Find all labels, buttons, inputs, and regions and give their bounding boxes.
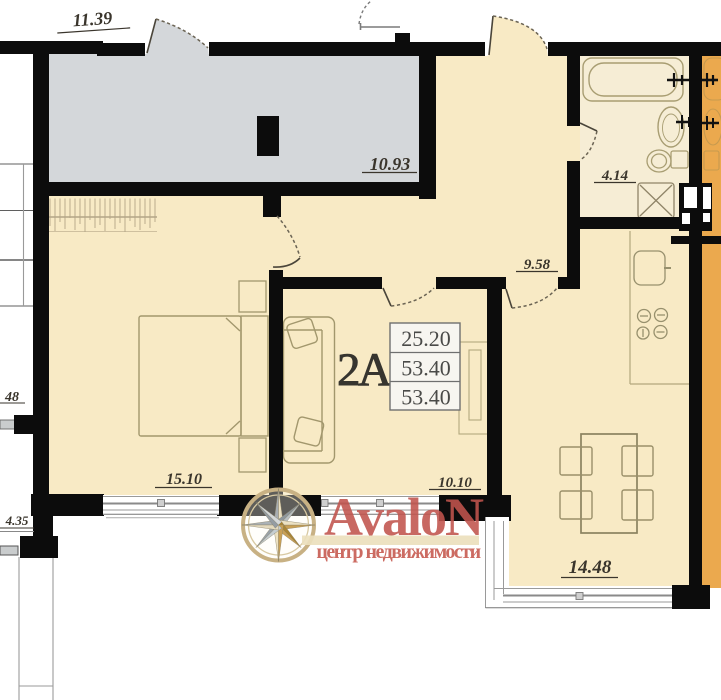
svg-text:4.14: 4.14 bbox=[601, 168, 629, 184]
svg-text:53.40: 53.40 bbox=[401, 385, 451, 410]
svg-text:2А: 2А bbox=[337, 344, 392, 396]
svg-text:центр недвижимости: центр недвижимости bbox=[316, 541, 480, 563]
svg-text:9.58: 9.58 bbox=[524, 257, 551, 273]
svg-text:53.40: 53.40 bbox=[401, 356, 451, 381]
svg-text:15.10: 15.10 bbox=[166, 471, 202, 488]
svg-text:AvaloN: AvaloN bbox=[324, 487, 484, 547]
svg-text:10.93: 10.93 bbox=[370, 154, 411, 174]
svg-text:25.20: 25.20 bbox=[401, 326, 451, 351]
svg-text:11.39: 11.39 bbox=[72, 8, 113, 31]
svg-text:4.35: 4.35 bbox=[5, 513, 29, 528]
svg-text:14.48: 14.48 bbox=[569, 557, 612, 578]
